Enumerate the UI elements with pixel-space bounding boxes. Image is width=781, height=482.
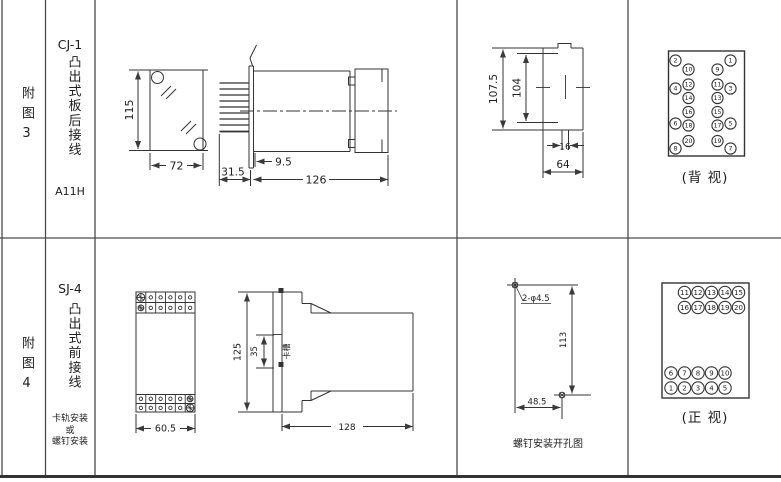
terminal-14: 14 [683,92,694,103]
svg-text:5: 5 [729,121,733,128]
fig3-code: A11H [45,185,95,198]
fig4-terminal-view: 1112131415161718192067891012345 [662,283,749,398]
fig3-mount-type: 凸出式板后接线 [64,55,83,157]
dim-panel-width: 72 [170,160,184,173]
terminal-18: 18 [705,301,717,313]
fig3-view-caption: (背 视) [629,166,781,186]
terminal-11: 11 [678,286,690,298]
svg-text:7: 7 [729,146,733,153]
terminal-10: 10 [719,367,731,379]
svg-text:4: 4 [709,385,714,393]
dim-hole-spec: 2-φ4.5 [522,294,550,304]
terminal-3: 3 [725,83,736,94]
terminal-12: 12 [692,286,704,298]
svg-text:14: 14 [685,95,693,102]
slot-end-mark [279,363,283,367]
dim-hole-spacing-v: 113 [559,332,569,348]
fig4-model: SJ-4 [45,281,95,296]
fig3-terminal-view: 2468101214161820911131517191357 [669,51,745,156]
svg-text:14: 14 [721,289,730,297]
technical-drawing-sheet: 115 72 [0,0,781,482]
mount-note-line: 卡轨安装 [45,414,95,426]
terminal-17: 17 [712,120,723,131]
dim-collar-depth: 9.5 [275,157,292,169]
fig4-front-view-drawing: 60.5 [136,292,195,435]
svg-text:10: 10 [685,67,693,74]
svg-text:13: 13 [707,289,716,297]
fig4-side-view-drawing: 125 35 卡槽 128 [233,289,414,434]
fig4-drill-diagram: 2-φ4.5 113 48.5 [507,278,591,419]
dim-front-height: 125 [233,343,244,361]
svg-text:5: 5 [723,385,727,393]
terminal-5: 5 [719,382,731,394]
mount-note-line: 螺钉安装 [45,437,95,449]
terminal-9: 9 [712,64,723,75]
dim-cutout-inner-height: 104 [512,78,524,98]
terminal-4: 4 [705,382,717,394]
fig4-index-label: 附图4 [17,336,36,398]
dim-body-length: 126 [306,174,327,187]
fig4-mount-type: 凸出式前接线 [64,302,83,390]
dim-hole-spacing-h: 48.5 [528,398,547,408]
terminal-2: 2 [670,55,681,66]
dim-slot-height: 35 [250,346,260,357]
terminal-6: 6 [665,367,677,379]
svg-text:20: 20 [734,304,743,312]
svg-text:2: 2 [682,385,686,393]
svg-text:3: 3 [696,385,700,393]
break-mark [250,45,257,66]
terminal-8: 8 [670,143,681,154]
terminal-9: 9 [705,367,717,379]
svg-text:15: 15 [714,109,722,116]
svg-text:15: 15 [734,289,743,297]
svg-text:11: 11 [680,289,689,297]
mounting-hole [194,138,206,150]
svg-text:8: 8 [674,146,678,153]
terminal-1: 1 [665,382,677,394]
terminal-13: 13 [705,286,717,298]
fig3-model: CJ-1 [45,37,95,52]
fig3-panel-cutout-drawing: 107.5 104 16 64 [488,44,590,179]
fig3-front-panel-drawing: 115 72 [123,70,208,173]
svg-text:19: 19 [714,138,722,145]
terminal-17: 17 [692,301,704,313]
hatch-marks [161,86,196,134]
terminal-13: 13 [712,92,723,103]
svg-text:17: 17 [714,123,722,130]
svg-text:1: 1 [729,58,733,65]
svg-text:6: 6 [674,121,678,128]
terminal-11: 11 [712,79,723,90]
svg-text:11: 11 [714,82,722,89]
svg-text:3: 3 [729,86,733,93]
back-view-terminals: 2468101214161820911131517191357 [670,55,736,154]
dim-front-width: 60.5 [155,424,176,435]
dim-cutout-outer-height: 107.5 [488,74,500,104]
dim-body-length: 128 [338,423,355,433]
svg-text:16: 16 [685,109,693,116]
terminal-4: 4 [670,83,681,94]
terminal-3: 3 [692,382,704,394]
terminal-7: 7 [678,367,690,379]
center-marks [536,75,590,99]
slot-end-mark [279,289,283,293]
fig3-index-label: 附图3 [17,86,36,148]
fig3-side-view-drawing: 9.5 31.5 126 [219,45,397,187]
terminal-15: 15 [732,286,744,298]
svg-text:2: 2 [674,58,678,65]
dim-cutout-width: 64 [556,159,570,171]
terminal-12: 12 [683,79,694,90]
terminal-19: 19 [712,135,723,146]
terminal-6: 6 [670,118,681,129]
mounting-hole [152,72,164,84]
svg-text:4: 4 [674,86,678,93]
slot-label: 卡槽 [282,344,292,360]
terminal-16: 16 [678,301,690,313]
terminal-14: 14 [719,286,731,298]
svg-text:1: 1 [669,385,673,393]
svg-text:9: 9 [716,67,720,74]
terminal-pins [220,83,250,132]
terminal-10: 10 [683,64,694,75]
mount-note-line: 或 [45,426,95,438]
dim-pin-length: 31.5 [221,167,244,179]
terminal-19: 19 [719,301,731,313]
svg-text:7: 7 [682,370,686,378]
svg-text:12: 12 [685,82,693,89]
svg-text:13: 13 [714,95,722,102]
terminal-18: 18 [683,120,694,131]
svg-text:17: 17 [694,304,703,312]
terminal-7: 7 [725,143,736,154]
terminal-1: 1 [725,55,736,66]
terminal-20: 20 [732,301,744,313]
svg-text:16: 16 [680,304,689,312]
svg-text:20: 20 [685,138,693,145]
terminal-15: 15 [712,106,723,117]
svg-text:18: 18 [707,304,716,312]
fig4-mount-notes: 卡轨安装 或 螺钉安装 [45,414,95,449]
fig4-drill-caption: 螺钉安装开孔图 [474,435,622,450]
fig4-view-caption: (正 视) [629,406,781,426]
svg-text:12: 12 [694,289,703,297]
svg-text:8: 8 [696,370,700,378]
terminal-8: 8 [692,367,704,379]
svg-text:19: 19 [721,304,730,312]
terminal-2: 2 [678,382,690,394]
dim-stud-width: 16 [559,143,571,153]
dim-panel-height: 115 [123,100,136,121]
svg-text:6: 6 [669,370,674,378]
terminal-5: 5 [725,118,736,129]
svg-text:18: 18 [685,123,693,130]
svg-text:10: 10 [721,370,730,378]
terminal-20: 20 [683,135,694,146]
front-view-terminals: 1112131415161718192067891012345 [665,286,745,394]
terminal-16: 16 [683,106,694,117]
svg-text:9: 9 [709,370,713,378]
